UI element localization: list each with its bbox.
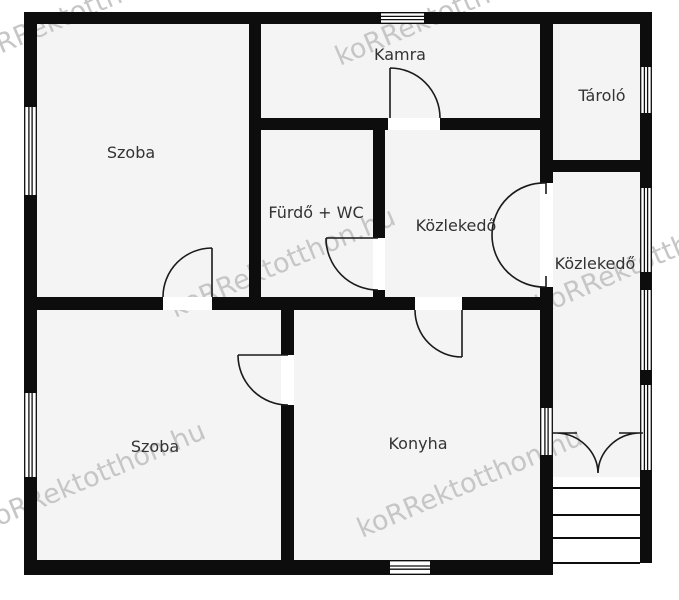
window-szoba1-left xyxy=(24,107,37,195)
door-opening-kamra xyxy=(388,118,440,130)
window-kamra-top xyxy=(381,12,424,24)
wall-szoba1-kamra xyxy=(249,24,261,297)
wall-outer-left xyxy=(24,12,37,575)
wall-middle-horizontal xyxy=(24,297,553,310)
window-kozlekedo2-right-1 xyxy=(640,188,652,272)
label-konyha: Konyha xyxy=(388,434,447,453)
wall-szoba2-konyha xyxy=(281,310,294,575)
door-opening-konyha xyxy=(415,297,462,310)
floor-plan-page: koRRektotthon.hu koRRektotthon.hu koRRek… xyxy=(0,0,679,600)
entry-steps xyxy=(553,477,640,563)
label-szoba-2: Szoba xyxy=(131,437,179,456)
window-szoba2-left xyxy=(24,393,37,477)
window-kozlekedo2-right-2 xyxy=(640,290,652,370)
room-fill-kozlekedo-1 xyxy=(385,130,540,297)
window-kozlekedo2-right-3 xyxy=(640,385,652,470)
label-kozlekedo-2: Közlekedő xyxy=(555,254,636,273)
label-kozlekedo-1: Közlekedő xyxy=(416,216,497,235)
door-opening-furdo xyxy=(373,238,385,290)
steps-area xyxy=(553,477,640,563)
window-tarolo-right xyxy=(640,67,652,113)
door-opening-szoba1-szoba2 xyxy=(163,297,212,310)
wall-kamra-tarolo xyxy=(540,24,553,172)
window-konyha-bottom xyxy=(390,560,430,575)
wall-outer-top xyxy=(24,12,652,24)
label-furdo-wc: Fürdő + WC xyxy=(268,203,363,222)
label-kamra: Kamra xyxy=(374,45,426,64)
floor-plan: koRRektotthon.hu koRRektotthon.hu koRRek… xyxy=(0,0,679,600)
label-tarolo: Tároló xyxy=(577,86,625,105)
window-konyha-kozlekedo2 xyxy=(540,408,553,455)
door-opening-kozlekedo-double xyxy=(540,183,553,287)
label-szoba-1: Szoba xyxy=(107,143,155,162)
wall-tarolo-bottom xyxy=(553,160,640,172)
door-opening-szoba2-konyha xyxy=(281,355,294,405)
